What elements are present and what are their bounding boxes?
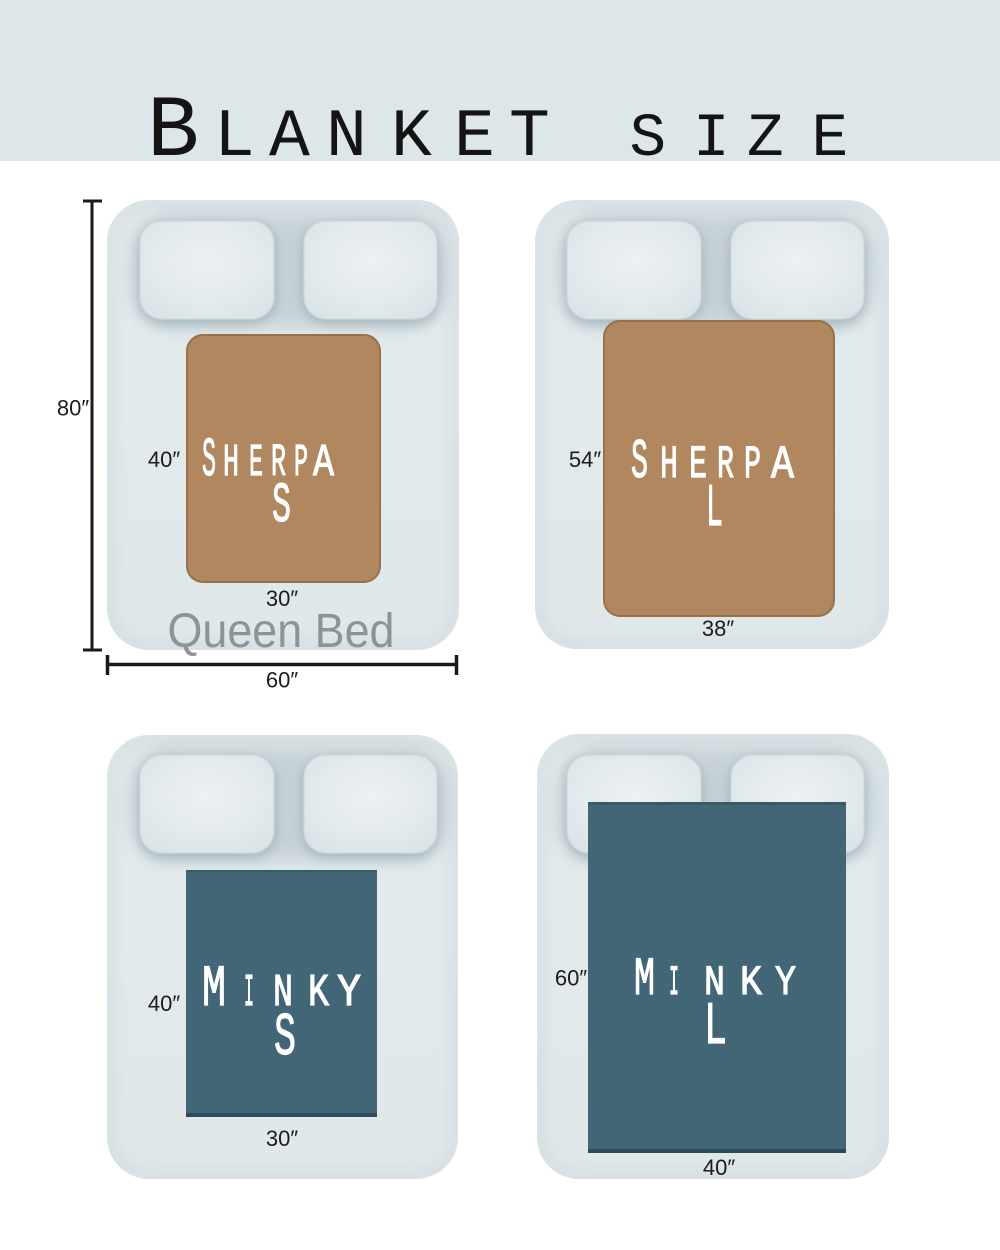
svg-text:80″: 80″ <box>57 396 89 421</box>
svg-text:38″: 38″ <box>702 616 734 641</box>
svg-text:S: S <box>202 429 216 492</box>
svg-text:54″: 54″ <box>569 447 601 472</box>
svg-text:H: H <box>223 438 239 489</box>
svg-text:E: E <box>249 438 263 489</box>
svg-text:40″: 40″ <box>148 991 180 1016</box>
svg-text:P: P <box>294 438 308 489</box>
svg-text:S: S <box>274 1005 296 1073</box>
svg-text:40″: 40″ <box>703 1155 735 1180</box>
svg-text:E: E <box>689 439 707 491</box>
svg-text:I: I <box>244 968 254 1019</box>
svg-text:A: A <box>313 438 334 489</box>
svg-text:30″: 30″ <box>266 1126 298 1151</box>
svg-text:L: L <box>706 476 723 544</box>
svg-text:40″: 40″ <box>148 447 180 472</box>
svg-text:L: L <box>704 994 727 1062</box>
svg-text:M: M <box>634 950 655 1011</box>
svg-text:S: S <box>631 430 648 494</box>
svg-text:K: K <box>740 959 763 1007</box>
svg-text:30″: 30″ <box>266 586 298 611</box>
svg-text:H: H <box>660 439 678 491</box>
svg-text:60″: 60″ <box>555 966 587 991</box>
svg-text:Y: Y <box>775 959 796 1007</box>
svg-text:Queen Bed: Queen Bed <box>168 605 395 658</box>
svg-text:S: S <box>272 475 291 539</box>
svg-text:M: M <box>202 958 226 1023</box>
svg-text:I: I <box>669 959 679 1007</box>
svg-text:K: K <box>308 968 329 1019</box>
svg-text:Y: Y <box>337 968 361 1019</box>
svg-text:A: A <box>771 439 794 491</box>
svg-text:P: P <box>744 439 761 491</box>
svg-text:60″: 60″ <box>266 668 298 693</box>
